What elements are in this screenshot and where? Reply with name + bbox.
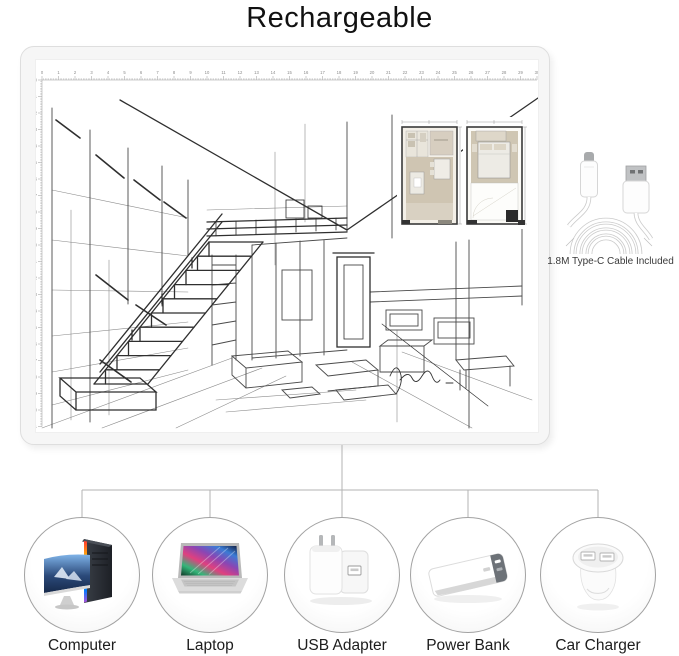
usb-cable-graphic — [548, 142, 679, 258]
svg-text:16: 16 — [36, 341, 38, 346]
ruler-left: 0123456789101112131415161718192021 — [36, 77, 42, 429]
svg-text:1: 1 — [57, 70, 60, 75]
svg-text:4: 4 — [36, 143, 38, 148]
usb-wall-adapter-icon — [296, 529, 388, 621]
charging-option-circle-power-bank — [410, 517, 526, 633]
svg-text:9: 9 — [36, 226, 38, 231]
svg-text:5: 5 — [36, 160, 38, 165]
cable-caption: 1.8M Type-C Cable Included — [542, 256, 679, 267]
svg-text:16: 16 — [304, 70, 309, 75]
connector-lines — [0, 445, 679, 520]
svg-text:25: 25 — [452, 70, 457, 75]
svg-text:20: 20 — [370, 70, 375, 75]
svg-text:6: 6 — [36, 176, 38, 181]
light-pad-screen: 0123456789101112131415161718192021222324… — [35, 59, 539, 433]
charging-option-circle-computer — [24, 517, 140, 633]
svg-text:22: 22 — [403, 70, 408, 75]
product-image: Rechargeable 012345678910111213141516171… — [0, 0, 679, 656]
svg-text:11: 11 — [36, 259, 38, 264]
svg-text:11: 11 — [221, 70, 226, 75]
usb-type-c-connector-icon — [581, 152, 598, 197]
svg-text:30: 30 — [535, 70, 538, 75]
svg-text:12: 12 — [36, 275, 38, 280]
charging-option-label: USB Adapter — [284, 637, 400, 655]
svg-text:7: 7 — [156, 70, 159, 75]
svg-text:0: 0 — [41, 70, 44, 75]
svg-text:12: 12 — [238, 70, 243, 75]
svg-text:0: 0 — [36, 77, 38, 82]
car-charger-icon — [552, 529, 644, 621]
charging-option-circle-laptop — [152, 517, 268, 633]
svg-text:13: 13 — [36, 292, 38, 297]
usb-a-connector-icon — [623, 166, 649, 213]
desktop-computer-icon — [36, 529, 128, 621]
svg-text:19: 19 — [353, 70, 358, 75]
svg-text:28: 28 — [502, 70, 507, 75]
svg-text:23: 23 — [419, 70, 424, 75]
charging-option-circle-car-charger — [540, 517, 656, 633]
svg-text:15: 15 — [287, 70, 292, 75]
charging-option-label: Laptop — [152, 637, 268, 655]
charging-option-label: Computer — [24, 637, 140, 655]
svg-text:21: 21 — [386, 70, 391, 75]
svg-text:10: 10 — [205, 70, 210, 75]
floor-plan-1 — [397, 117, 462, 229]
svg-text:20: 20 — [36, 407, 38, 412]
page-title: Rechargeable — [0, 2, 679, 35]
svg-text:3: 3 — [90, 70, 93, 75]
svg-text:24: 24 — [436, 70, 441, 75]
svg-text:5: 5 — [123, 70, 126, 75]
svg-text:26: 26 — [469, 70, 474, 75]
svg-text:3: 3 — [36, 127, 38, 132]
svg-text:14: 14 — [36, 308, 38, 313]
svg-text:2: 2 — [74, 70, 77, 75]
svg-text:27: 27 — [485, 70, 490, 75]
svg-text:10: 10 — [36, 242, 38, 247]
svg-text:8: 8 — [36, 209, 38, 214]
charging-option-circle-usb-adapter — [284, 517, 400, 633]
svg-text:29: 29 — [518, 70, 523, 75]
power-bank-icon — [422, 529, 514, 621]
tracing-sketch: 0123456789101112131415161718192021222324… — [36, 60, 538, 432]
svg-text:7: 7 — [36, 193, 38, 198]
svg-text:19: 19 — [36, 391, 38, 396]
svg-text:1: 1 — [36, 94, 38, 99]
svg-text:18: 18 — [36, 374, 38, 379]
svg-text:15: 15 — [36, 325, 38, 330]
svg-text:17: 17 — [36, 358, 38, 363]
svg-text:4: 4 — [107, 70, 110, 75]
svg-text:21: 21 — [36, 424, 38, 429]
charging-option-label: Power Bank — [410, 637, 526, 655]
svg-text:13: 13 — [254, 70, 259, 75]
floor-plan-2 — [463, 117, 527, 229]
svg-text:18: 18 — [337, 70, 342, 75]
svg-text:17: 17 — [320, 70, 325, 75]
artist-signature — [382, 324, 488, 406]
svg-text:6: 6 — [140, 70, 143, 75]
svg-text:2: 2 — [36, 110, 38, 115]
charging-option-label: Car Charger — [540, 637, 656, 655]
laptop-icon — [164, 529, 256, 621]
light-pad: 0123456789101112131415161718192021222324… — [20, 46, 550, 445]
ruler-top: 0123456789101112131415161718192021222324… — [41, 70, 538, 80]
svg-text:14: 14 — [271, 70, 276, 75]
svg-text:8: 8 — [173, 70, 176, 75]
svg-text:9: 9 — [189, 70, 192, 75]
